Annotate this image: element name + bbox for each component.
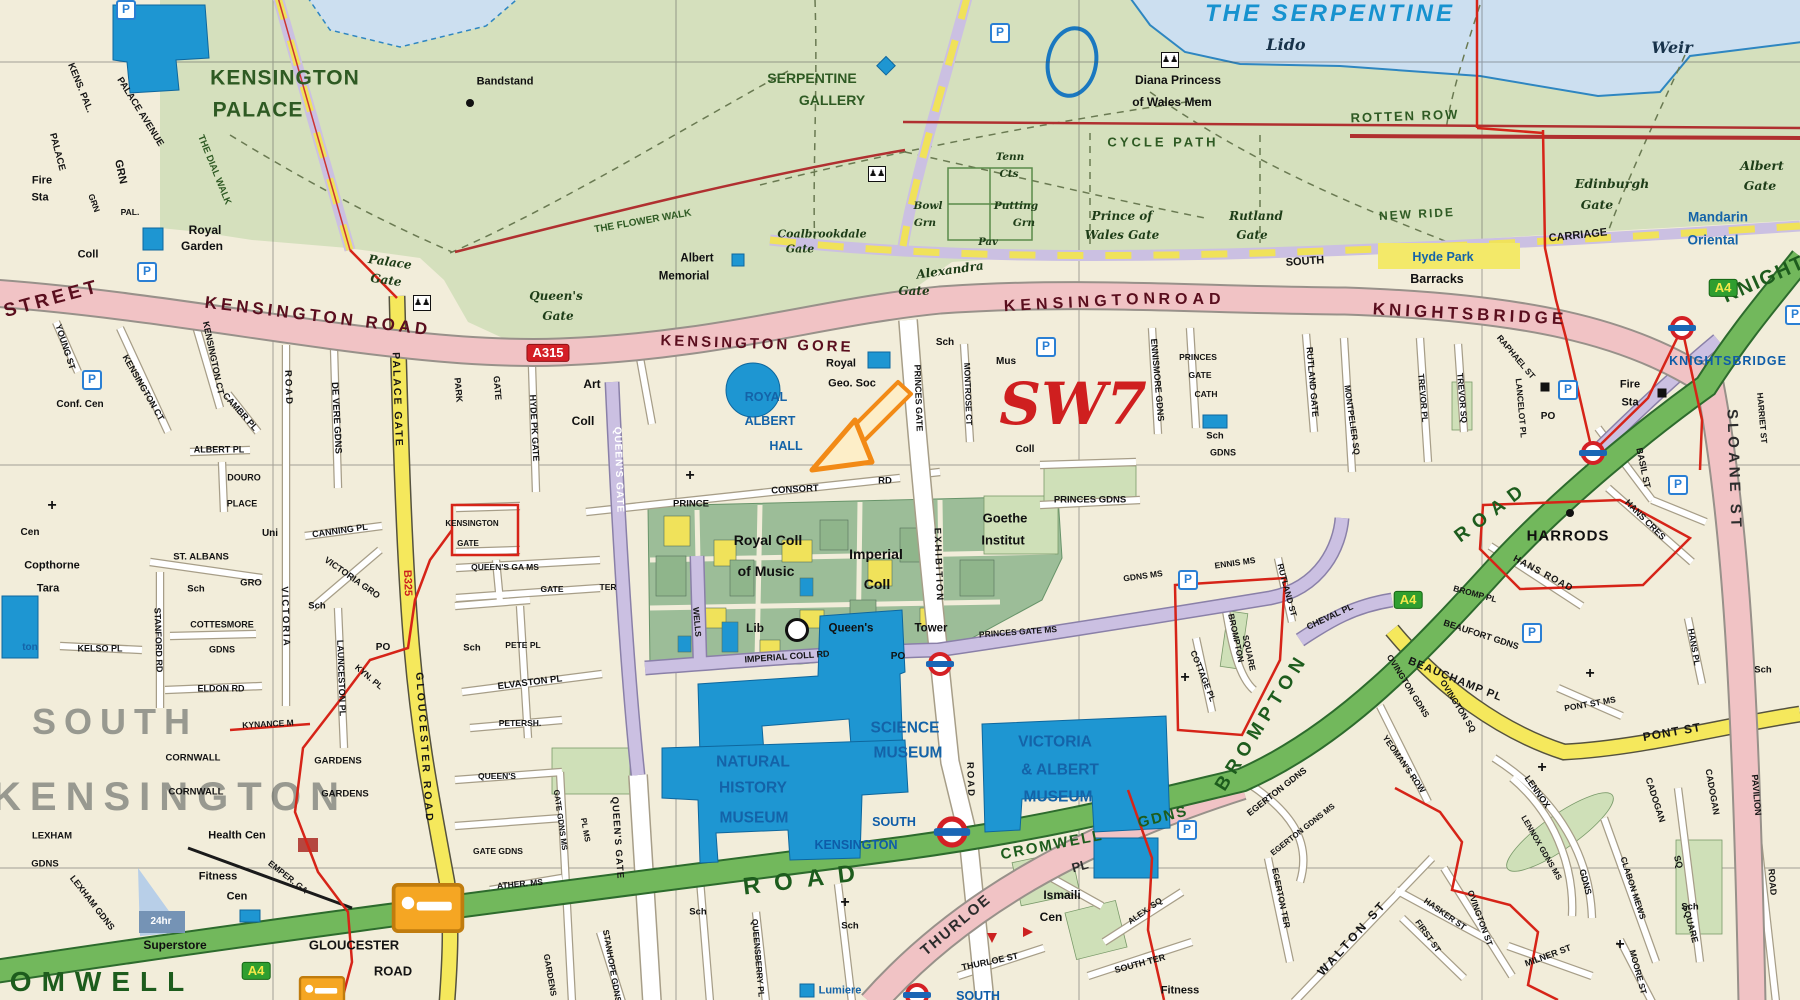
royal-albert-hall-building — [726, 363, 780, 417]
railway-line — [188, 848, 352, 908]
map-graphics — [0, 0, 1800, 1000]
selection-arrow-cursor — [812, 382, 911, 470]
map-canvas[interactable]: SOUTHKENSINGTON — [0, 0, 1800, 1000]
hyde-park-barracks-block — [1378, 243, 1520, 269]
left-edge-builtup — [0, 128, 60, 252]
superstore-marker — [138, 868, 185, 936]
